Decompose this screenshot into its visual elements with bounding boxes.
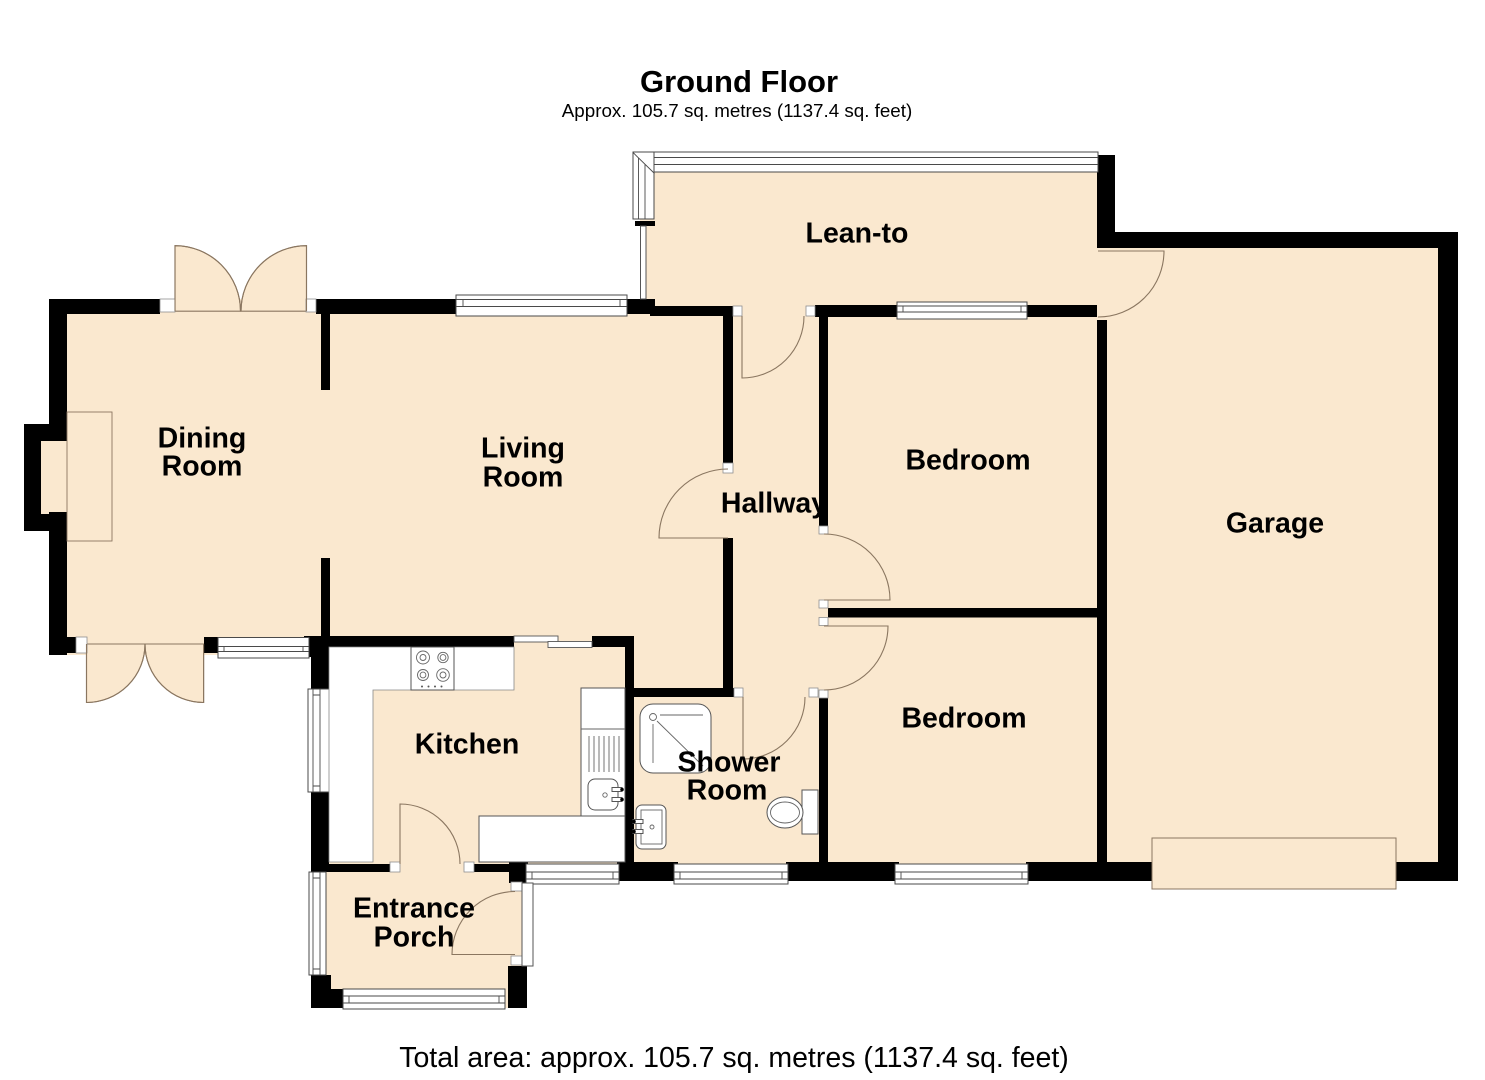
svg-text:Approx. 105.7 sq. metres (1137: Approx. 105.7 sq. metres (1137.4 sq. fee… bbox=[562, 100, 912, 121]
svg-text:Bedroom: Bedroom bbox=[905, 445, 1030, 477]
svg-text:Kitchen: Kitchen bbox=[415, 729, 520, 761]
svg-text:DiningRoom: DiningRoom bbox=[158, 423, 247, 483]
svg-text:Bedroom: Bedroom bbox=[901, 703, 1026, 735]
svg-text:Hallway: Hallway bbox=[721, 488, 827, 520]
svg-text:Garage: Garage bbox=[1226, 508, 1324, 540]
svg-text:Total area: approx. 105.7 sq.: Total area: approx. 105.7 sq. metres (11… bbox=[399, 1042, 1069, 1074]
svg-text:Lean-to: Lean-to bbox=[806, 218, 909, 250]
svg-text:Ground Floor: Ground Floor bbox=[640, 64, 838, 99]
svg-text:ShowerRoom: ShowerRoom bbox=[678, 746, 781, 806]
svg-text:LivingRoom: LivingRoom bbox=[481, 433, 565, 494]
